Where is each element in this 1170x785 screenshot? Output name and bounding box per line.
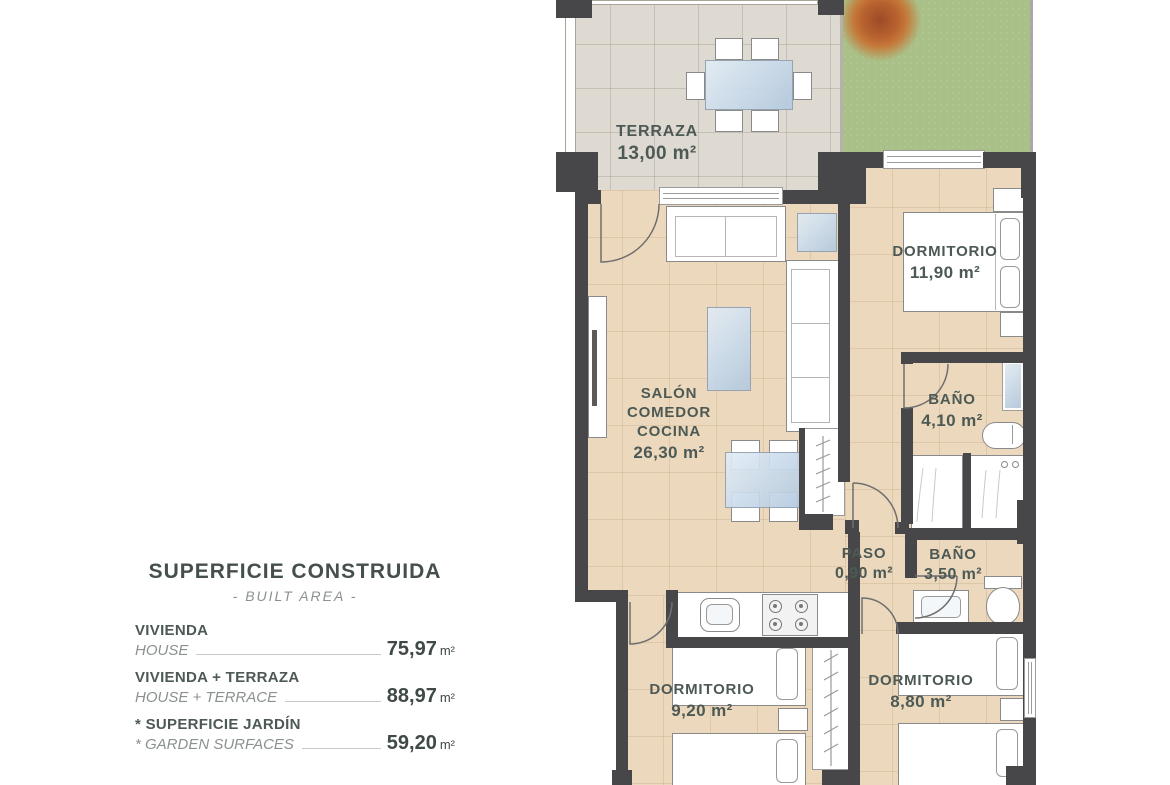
wall: [666, 590, 678, 638]
pillar: [818, 0, 844, 15]
legend-label-en: HOUSE + TERRACE: [135, 689, 277, 707]
terrace-window: [659, 187, 783, 205]
wall: [905, 528, 1035, 540]
pillar: [1021, 152, 1036, 198]
bedroom-window: [1024, 658, 1036, 718]
room-label-salon: SALÓN COMEDOR COCINA 26,30 m²: [627, 384, 711, 463]
pillow: [996, 637, 1018, 690]
sofa: [666, 206, 786, 262]
terrace-dining-table: [705, 60, 793, 110]
garden-window: [883, 150, 985, 169]
sofa-cushions: [675, 216, 777, 257]
pillar: [818, 152, 866, 194]
wall: [783, 190, 866, 204]
faucet-dot: [1012, 461, 1019, 468]
legend-value: 88,97: [387, 687, 437, 705]
vanity-sink: [913, 590, 969, 624]
wall: [903, 352, 1035, 363]
kitchen-sink: [700, 598, 740, 632]
sink-basin: [706, 604, 733, 625]
room-area: 4,10 m²: [921, 411, 982, 431]
legend-row-vivienda: VIVIENDA HOUSE 75,97 m²: [135, 622, 455, 660]
tv-sideboard: [588, 296, 607, 438]
room-name: COCINA: [627, 422, 711, 441]
legend-unit: m²: [440, 689, 455, 707]
wall: [822, 770, 850, 785]
bathroom-window: [1003, 362, 1023, 410]
legend-rows: VIVIENDA HOUSE 75,97 m² VIVIENDA + TERRA…: [135, 622, 455, 754]
room-label-paso: PASO 0,90 m²: [835, 544, 893, 583]
kitchen-hob: [762, 594, 818, 636]
room-label-dormitorio-1: DORMITORIO 11,90 m²: [892, 242, 997, 283]
wall: [575, 190, 601, 204]
room-label-bano-1: BAÑO 4,10 m²: [921, 390, 982, 431]
pillar: [556, 152, 598, 192]
garden-border: [1030, 0, 1033, 152]
terrace-chair: [686, 72, 705, 100]
wall: [864, 152, 885, 168]
exterior-wall: [575, 204, 588, 594]
wall: [905, 540, 917, 578]
sofa-cushion-split: [725, 216, 726, 257]
sink-basin: [921, 596, 961, 618]
room-area: 11,90 m²: [892, 263, 997, 283]
wall: [896, 622, 1035, 634]
legend-row-jardin: * SUPERFICIE JARDÍN * GARDEN SURFACES 59…: [135, 716, 455, 754]
room-label-dormitorio-2: DORMITORIO 9,20 m²: [649, 680, 754, 721]
room-area: 26,30 m²: [627, 443, 711, 463]
wall: [983, 152, 1023, 168]
wall: [838, 204, 850, 482]
toilet-tank-line: [1012, 425, 1013, 444]
leader-line: [302, 748, 381, 749]
terrace-garden-divider: [840, 0, 843, 152]
room-label-terraza: TERRAZA 13,00 m²: [616, 122, 698, 165]
terrace-parapet: [565, 0, 818, 5]
room-name: DORMITORIO: [649, 680, 754, 699]
dining-table: [725, 452, 803, 508]
pillow: [776, 648, 798, 700]
built-area-legend: SUPERFICIE CONSTRUIDA - BUILT AREA - VIV…: [135, 560, 455, 763]
pillow: [776, 739, 798, 783]
chaise-sofa: [786, 260, 840, 432]
hob-burner: [769, 618, 782, 631]
bedroom-wardrobe: [812, 645, 850, 770]
wall: [799, 428, 805, 528]
legend-value: 75,97: [387, 640, 437, 658]
terrace-chair: [715, 38, 743, 60]
chaise-cushions: [791, 269, 830, 423]
room-area: 0,90 m²: [835, 565, 893, 583]
room-area: 9,20 m²: [649, 701, 754, 721]
legend-subtitle: - BUILT AREA -: [135, 588, 455, 604]
coffee-table: [707, 307, 751, 391]
wall: [799, 514, 833, 530]
pillar: [612, 770, 632, 785]
room-name: PASO: [835, 544, 893, 563]
legend-label-en: HOUSE: [135, 642, 188, 660]
toilet: [984, 576, 1022, 626]
leader-line: [285, 701, 381, 702]
room-name: DORMITORIO: [892, 242, 997, 261]
chaise-split: [791, 377, 830, 378]
terrace-chair: [751, 38, 779, 60]
hob-burner: [769, 600, 782, 613]
room-area: 13,00 m²: [616, 143, 698, 165]
pillar: [845, 520, 859, 534]
room-name: BAÑO: [921, 390, 982, 409]
legend-value: 59,20: [387, 734, 437, 752]
room-name: TERRAZA: [616, 122, 698, 141]
terrace-chair: [715, 110, 743, 132]
toilet: [982, 422, 1026, 449]
kitchen-counter: [672, 592, 850, 638]
terrace-chair: [793, 72, 812, 100]
nightstand: [778, 708, 808, 731]
wall: [666, 637, 850, 648]
room-name: DORMITORIO: [868, 671, 973, 690]
room-name: SALÓN: [627, 384, 711, 403]
legend-title: SUPERFICIE CONSTRUIDA: [135, 560, 455, 584]
room-name: BAÑO: [924, 545, 982, 564]
hob-burner: [795, 618, 808, 631]
wall: [901, 408, 913, 524]
shower-divider-wall: [963, 453, 971, 535]
toilet-bowl: [986, 587, 1020, 625]
room-area: 3,50 m²: [924, 566, 982, 584]
chaise-split: [791, 323, 830, 324]
legend-unit: m²: [440, 642, 455, 660]
shower-tray: [911, 455, 963, 533]
pillow: [1000, 218, 1020, 260]
faucet-dot: [1001, 461, 1008, 468]
exterior-wall: [616, 598, 628, 785]
legend-label-en: * GARDEN SURFACES: [135, 736, 294, 754]
room-name: COMEDOR: [627, 403, 711, 422]
wall: [901, 352, 913, 364]
room-label-dormitorio-3: DORMITORIO 8,80 m²: [868, 671, 973, 712]
hob-burner: [795, 600, 808, 613]
pillow: [1000, 266, 1020, 308]
pillar: [1006, 766, 1036, 785]
side-table: [797, 213, 837, 252]
leader-line: [196, 654, 380, 655]
legend-unit: m²: [440, 736, 455, 754]
room-label-bano-2: BAÑO 3,50 m²: [924, 545, 982, 584]
legend-row-vivienda-terraza: VIVIENDA + TERRAZA HOUSE + TERRACE 88,97…: [135, 669, 455, 707]
pillar: [556, 0, 592, 18]
terrace-parapet: [565, 16, 576, 154]
floorplan-page: TERRAZA 13,00 m² DORMITORIO 11,90 m² SAL…: [0, 0, 1170, 785]
room-area: 8,80 m²: [868, 692, 973, 712]
tv: [592, 330, 597, 406]
terrace-chair: [751, 110, 779, 132]
